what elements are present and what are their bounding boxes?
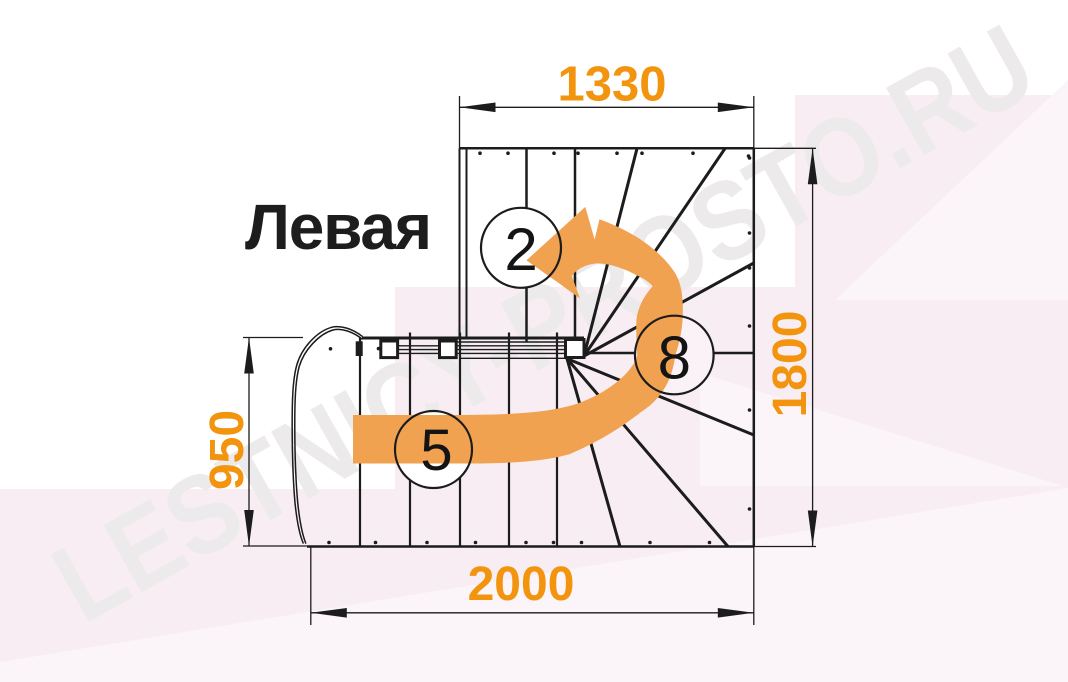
svg-text:950: 950: [201, 410, 254, 490]
svg-text:8: 8: [658, 325, 691, 392]
svg-text:1800: 1800: [764, 311, 817, 418]
svg-text:1330: 1330: [557, 58, 666, 112]
svg-text:Левая: Левая: [245, 191, 431, 263]
svg-text:5: 5: [420, 418, 452, 483]
svg-text:2000: 2000: [468, 558, 575, 611]
svg-text:2: 2: [504, 216, 537, 283]
